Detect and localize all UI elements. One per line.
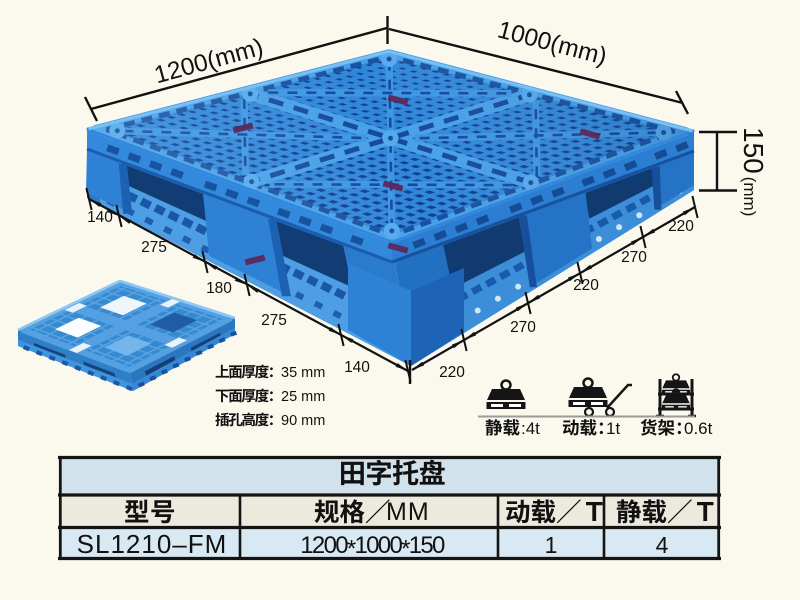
svg-text:270: 270 <box>510 319 536 336</box>
svg-text:4: 4 <box>656 532 669 558</box>
svg-text::4t: :4t <box>521 419 540 438</box>
svg-text:220: 220 <box>439 364 465 381</box>
svg-text:180: 180 <box>206 280 232 297</box>
svg-text:220: 220 <box>668 218 694 235</box>
svg-text:270: 270 <box>621 249 647 266</box>
svg-text:SL1210–FM: SL1210–FM <box>77 529 228 559</box>
svg-text:1t: 1t <box>606 419 620 438</box>
svg-text:275: 275 <box>141 239 167 256</box>
svg-text:1: 1 <box>545 532 558 558</box>
svg-text:140: 140 <box>87 209 113 226</box>
svg-text:25 mm: 25 mm <box>281 389 325 405</box>
svg-text:1200*1000*150: 1200*1000*150 <box>300 532 445 563</box>
svg-text:275: 275 <box>261 312 287 329</box>
svg-text:220: 220 <box>573 277 599 294</box>
svg-text:MM: MM <box>386 498 430 526</box>
svg-text:35 mm: 35 mm <box>281 365 325 381</box>
svg-text:90 mm: 90 mm <box>281 413 325 429</box>
svg-text:0.6t: 0.6t <box>684 419 713 438</box>
svg-text:140: 140 <box>344 359 370 376</box>
